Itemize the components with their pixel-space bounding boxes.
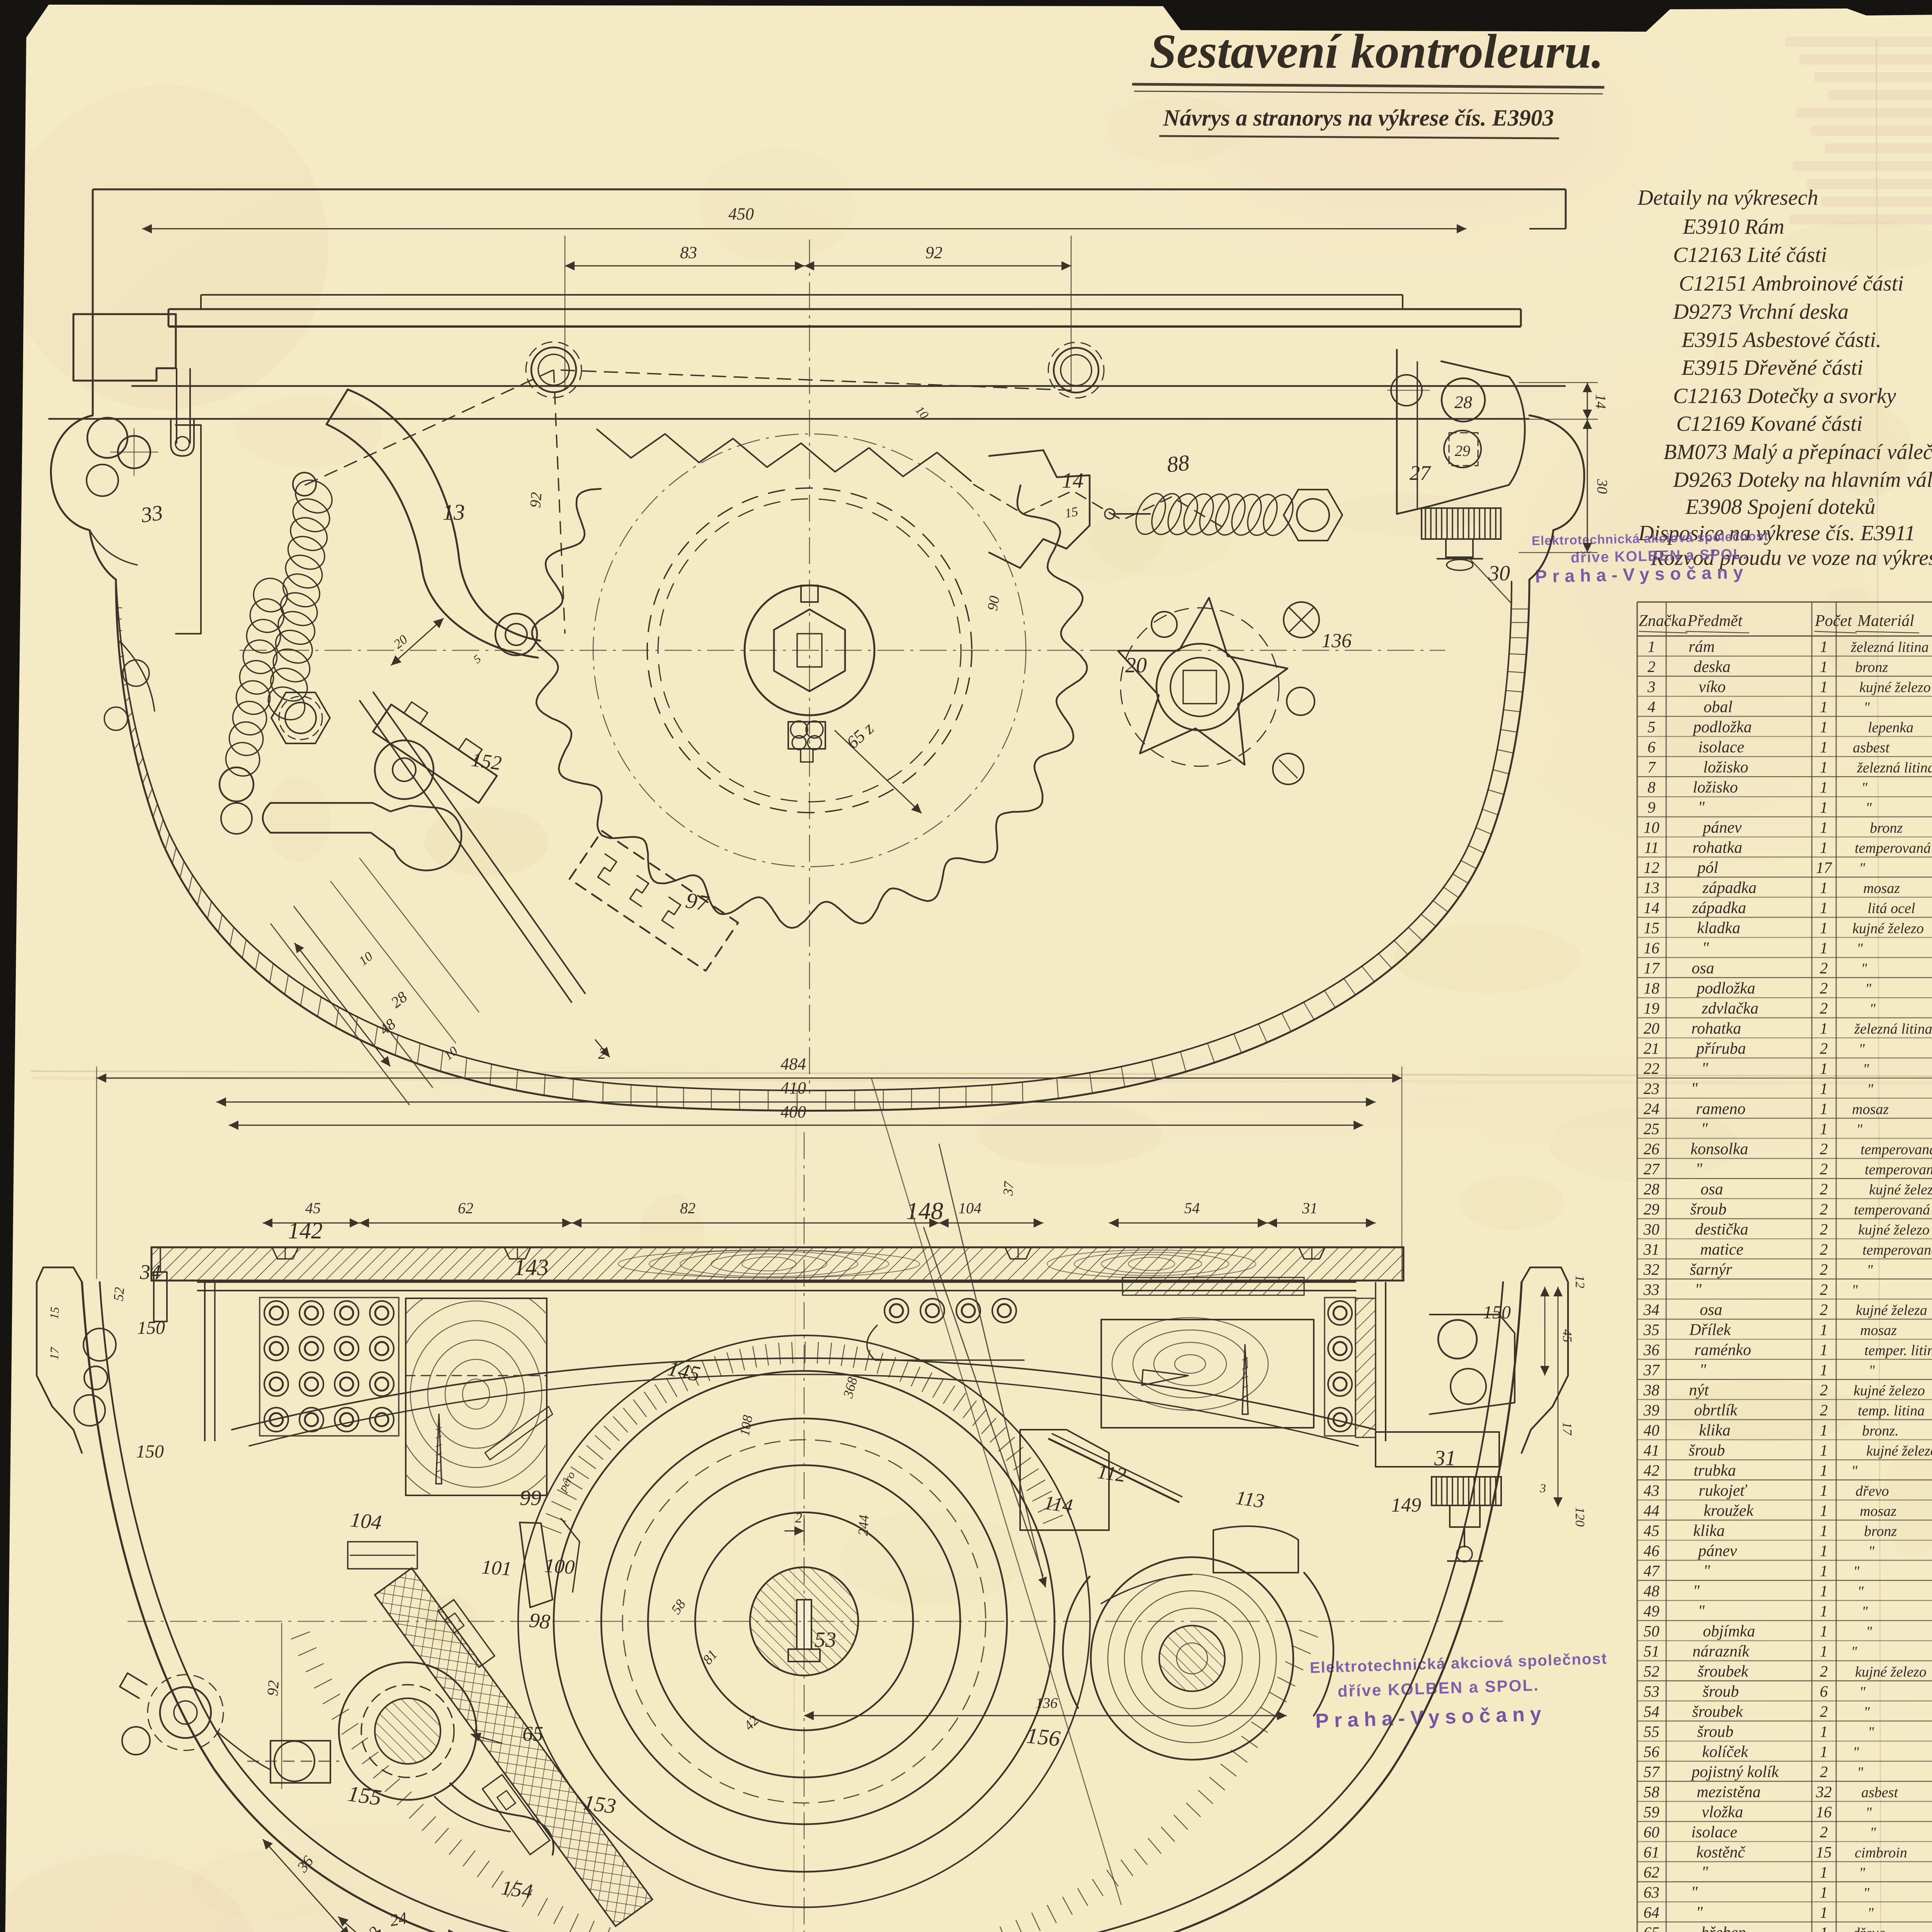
svg-text:1: 1 [1820,1622,1828,1640]
svg-text:29: 29 [1644,1200,1660,1218]
svg-text:1: 1 [1820,1522,1828,1539]
svg-text:19: 19 [1644,999,1660,1017]
svg-text:": " [1864,699,1870,716]
svg-text:1: 1 [1820,1863,1828,1881]
svg-text:2: 2 [1820,1763,1828,1781]
svg-text:1: 1 [1820,1542,1828,1560]
svg-text:západka: západka [1702,879,1757,897]
svg-text:šarnýr: šarnýr [1690,1261,1732,1279]
svg-text:ložisko: ložisko [1693,779,1738,796]
svg-text:pól: pól [1696,859,1718,877]
svg-text:": " [1857,1583,1864,1600]
svg-text:57: 57 [1644,1763,1660,1781]
svg-text:Předmět: Předmět [1687,612,1743,630]
svg-text:64: 64 [1644,1903,1660,1921]
svg-text:142: 142 [288,1218,323,1243]
svg-text:13: 13 [442,500,465,525]
svg-text:1: 1 [1820,1100,1828,1117]
svg-text:D9273 Vrchní deska: D9273 Vrchní deska [1673,300,1849,324]
svg-text:88: 88 [1166,450,1190,477]
svg-text:": " [1691,1080,1698,1098]
svg-text:": " [1867,1081,1874,1097]
svg-text:raménko: raménko [1694,1341,1751,1359]
svg-text:C12151 Ambroinové části: C12151 Ambroinové části [1679,272,1904,296]
svg-text:2: 2 [1820,1220,1828,1238]
svg-text:56: 56 [1644,1743,1660,1760]
svg-text:E3908 Spojení doteků: E3908 Spojení doteků [1685,495,1875,519]
svg-text:28: 28 [1644,1180,1660,1198]
svg-text:deska: deska [1694,658,1731,676]
svg-text:48: 48 [1644,1582,1660,1600]
svg-text:155: 155 [346,1781,383,1810]
svg-text:": " [1702,939,1709,957]
svg-text:30: 30 [1643,1220,1660,1238]
svg-text:82: 82 [680,1199,696,1217]
svg-text:34: 34 [1643,1301,1660,1318]
svg-text:2: 2 [1820,1702,1828,1720]
svg-text:31: 31 [1643,1240,1660,1258]
svg-text:mosaz: mosaz [1852,1101,1889,1117]
svg-text:": " [1859,1041,1865,1057]
svg-text:113: 113 [1234,1486,1265,1512]
svg-text:1: 1 [1820,1562,1828,1580]
svg-text:99: 99 [520,1486,541,1510]
svg-text:4: 4 [1648,698,1656,716]
svg-text:45: 45 [1644,1522,1660,1539]
svg-text:litá ocel: litá ocel [1867,900,1915,917]
svg-text:kolíček: kolíček [1702,1743,1748,1761]
svg-text:": " [1695,1281,1702,1299]
svg-text:2: 2 [1820,959,1828,977]
svg-text:13: 13 [1644,879,1660,896]
svg-text:": " [1853,1563,1860,1580]
svg-text:kujné železo: kujné železo [1859,679,1931,696]
svg-text:52: 52 [111,1286,127,1301]
svg-text:43: 43 [1644,1481,1660,1499]
svg-text:400: 400 [781,1102,806,1121]
svg-text:92: 92 [526,492,545,509]
svg-text:kujné železo: kujné železo [1852,920,1924,937]
svg-text:83: 83 [680,243,697,262]
svg-text:1: 1 [1820,1019,1828,1037]
svg-text:1: 1 [1820,1341,1828,1359]
svg-text:2: 2 [1820,1260,1828,1278]
svg-text:101: 101 [481,1556,512,1580]
svg-text:matice: matice [1700,1241,1743,1259]
svg-text:36: 36 [1643,1341,1660,1359]
svg-text:53: 53 [815,1628,836,1652]
svg-text:bronz: bronz [1864,1523,1897,1539]
svg-text:32: 32 [1816,1783,1832,1801]
svg-text:": " [1867,1262,1873,1278]
svg-text:": " [1853,1744,1859,1760]
svg-text:": " [1861,780,1868,796]
svg-text:pánev: pánev [1702,819,1742,837]
svg-text:C12163 Dotečky a svorky: C12163 Dotečky a svorky [1673,384,1896,408]
svg-text:Počet: Počet [1815,612,1852,630]
svg-text:temp. litina: temp. litina [1858,1403,1925,1419]
svg-text:136: 136 [1321,630,1352,652]
svg-text:3: 3 [1647,678,1656,696]
svg-text:": " [1867,1905,1874,1921]
svg-text:": " [1857,1764,1864,1781]
svg-text:kroužek: kroužek [1704,1502,1754,1520]
svg-text:": " [1698,799,1705,816]
svg-text:53: 53 [1644,1682,1660,1700]
svg-text:54: 54 [1184,1199,1200,1217]
svg-text:kujné železo: kujné železo [1866,1443,1932,1459]
svg-text:24: 24 [388,1908,408,1930]
svg-text:pojistný kolík: pojistný kolík [1690,1763,1779,1781]
svg-text:16: 16 [1816,1803,1832,1821]
svg-text:1: 1 [1820,1602,1828,1620]
svg-text:temper. litina: temper. litina [1864,1342,1932,1359]
svg-text:nárazník: nárazník [1692,1643,1750,1660]
svg-text:29: 29 [1455,442,1470,459]
svg-text:rameno: rameno [1696,1100,1745,1118]
svg-text:": " [1865,981,1872,997]
svg-text:2: 2 [1648,658,1656,675]
svg-text:E3915 Asbestové části.: E3915 Asbestové části. [1681,328,1881,352]
svg-text:15: 15 [1816,1843,1832,1861]
svg-text:temperovaná litina: temperovaná litina [1862,1242,1932,1258]
svg-text:": " [1696,1160,1702,1178]
svg-text:": " [1863,1061,1869,1077]
svg-text:kladka: kladka [1697,919,1740,937]
svg-text:31: 31 [1434,1446,1456,1470]
svg-text:46: 46 [1644,1542,1660,1560]
svg-text:33: 33 [139,501,164,527]
svg-text:6: 6 [1648,738,1656,756]
svg-text:3: 3 [1539,1481,1546,1495]
svg-text:cimbroin: cimbroin [1855,1845,1907,1861]
svg-text:44: 44 [1644,1502,1660,1519]
svg-text:54: 54 [1644,1702,1660,1720]
svg-text:24: 24 [1644,1100,1660,1117]
svg-text:21: 21 [1644,1039,1660,1057]
svg-text:": " [1870,1825,1876,1841]
svg-text:12: 12 [1573,1275,1587,1288]
svg-text:50: 50 [1644,1622,1660,1640]
svg-text:15: 15 [47,1306,62,1320]
svg-text:kujné železo: kujné železo [1858,1222,1930,1238]
svg-text:42: 42 [1644,1461,1660,1479]
svg-text:rám: rám [1689,638,1715,656]
svg-text:150: 150 [137,1318,165,1338]
svg-text:mosaz: mosaz [1860,1322,1897,1338]
svg-text:2: 2 [1820,1281,1828,1298]
svg-text:": " [1869,1362,1875,1379]
svg-text:65: 65 [522,1722,543,1745]
svg-text:C12163 Lité části: C12163 Lité části [1673,243,1827,267]
svg-text:15: 15 [1644,919,1660,937]
svg-text:14: 14 [1062,469,1083,493]
svg-text:136: 136 [1036,1695,1058,1711]
svg-text:104: 104 [349,1508,383,1534]
svg-text:C12169 Kované části: C12169 Kované části [1676,412,1862,436]
svg-text:2: 2 [1820,1823,1828,1841]
svg-text:E3915 Dřevěné části: E3915 Dřevěné části [1681,356,1863,380]
svg-text:120: 120 [1573,1507,1587,1527]
svg-text:58: 58 [1644,1783,1660,1801]
svg-text:podložka: podložka [1692,718,1752,736]
svg-text:1: 1 [1820,778,1828,796]
svg-text:1: 1 [1820,879,1828,896]
svg-text:objímka: objímka [1703,1622,1755,1640]
svg-text:23: 23 [1644,1080,1660,1097]
svg-text:18: 18 [1644,979,1660,997]
svg-text:112: 112 [1096,1461,1127,1486]
svg-text:30: 30 [1594,479,1610,494]
svg-text:37: 37 [1643,1361,1660,1379]
svg-text:6: 6 [1820,1682,1828,1700]
svg-text:": " [1857,940,1863,957]
svg-text:mosaz: mosaz [1860,1503,1896,1519]
svg-text:mezistěna: mezistěna [1697,1783,1761,1801]
svg-text:51: 51 [1644,1642,1660,1660]
svg-text:": " [1866,800,1872,816]
svg-text:17: 17 [1560,1422,1574,1436]
svg-text:63: 63 [1644,1883,1660,1901]
svg-text:2: 2 [598,1045,606,1062]
svg-text:": " [1868,1724,1874,1740]
svg-text:ložisko: ložisko [1703,759,1748,776]
svg-text:kujné železo: kujné železo [1855,1664,1927,1680]
svg-text:kostěnč: kostěnč [1696,1844,1746,1861]
svg-text:destička: destička [1695,1221,1748,1238]
svg-text:temperovaná litina: temperovaná litina [1865,1162,1932,1178]
svg-text:": " [1696,1904,1703,1922]
svg-text:1: 1 [1820,1743,1828,1760]
svg-text:114: 114 [1043,1492,1074,1517]
svg-text:34: 34 [139,1260,161,1284]
svg-text:šroub: šroub [1697,1723,1733,1741]
svg-text:": " [1701,1060,1708,1078]
svg-text:D9263 Doteky na hlavním vál: D9263 Doteky na hlavním válci [1673,468,1932,492]
svg-text:obal: obal [1704,698,1733,716]
svg-text:90: 90 [985,595,1003,612]
svg-text:16: 16 [1644,939,1660,957]
svg-text:isolace: isolace [1691,1823,1737,1841]
svg-text:47: 47 [1644,1562,1660,1580]
svg-text:osa: osa [1701,1180,1723,1198]
svg-text:bronz: bronz [1870,820,1903,836]
svg-text:Dřílek: Dřílek [1689,1321,1731,1339]
svg-text:14: 14 [1644,899,1660,917]
svg-text:šroub: šroub [1689,1442,1725,1459]
svg-text:": " [1703,1562,1710,1580]
svg-text:156: 156 [1026,1723,1061,1751]
svg-text:klika: klika [1693,1522,1725,1540]
svg-text:rohatka: rohatka [1692,839,1742,857]
svg-text:bronz.: bronz. [1862,1423,1899,1439]
svg-text:1: 1 [1820,1461,1828,1479]
svg-text:": " [1869,1001,1876,1017]
svg-text:dřevo: dřevo [1852,1925,1886,1932]
svg-text:": " [1699,1361,1706,1379]
svg-text:38: 38 [1643,1381,1660,1399]
svg-text:1: 1 [1820,1502,1828,1519]
svg-text:2: 2 [1820,1662,1828,1680]
svg-text:lepenka: lepenka [1868,719,1913,736]
svg-text:484: 484 [781,1054,806,1073]
svg-text:dřevo: dřevo [1855,1483,1889,1499]
svg-text:obrtlík: obrtlík [1694,1401,1738,1419]
svg-text:": " [1862,1604,1868,1620]
svg-text:1: 1 [1820,638,1828,655]
svg-text:65: 65 [1644,1923,1660,1932]
svg-text:25: 25 [1644,1120,1660,1138]
svg-text:1: 1 [1820,658,1828,675]
svg-text:šroub: šroub [1702,1683,1739,1701]
svg-text:1: 1 [1820,1883,1828,1901]
svg-text:temperovaná litina: temperovaná litina [1861,1141,1932,1158]
svg-text:E3910 Rám: E3910 Rám [1682,215,1784,239]
svg-text:nýt: nýt [1689,1381,1709,1399]
svg-text:1: 1 [1820,698,1828,716]
svg-text:2: 2 [1820,999,1828,1017]
svg-text:osa: osa [1700,1301,1722,1319]
svg-text:1: 1 [1820,718,1828,736]
svg-text:1: 1 [1820,758,1828,776]
svg-text:": " [1852,1282,1858,1298]
svg-text:49: 49 [1644,1602,1660,1620]
svg-text:20: 20 [1644,1019,1660,1037]
svg-text:2: 2 [1820,1401,1828,1419]
svg-text:klika: klika [1699,1422,1731,1439]
svg-text:podložka: podložka [1696,980,1755,997]
svg-text:17: 17 [47,1346,62,1361]
svg-text:mosaz: mosaz [1863,880,1900,896]
svg-text:": " [1861,961,1867,977]
svg-text:1: 1 [1820,1903,1828,1921]
svg-text:Sestavení kontroleuru.: Sestavení kontroleuru. [1150,25,1604,78]
svg-text:kujné železa: kujné železa [1856,1302,1927,1318]
svg-text:rukojeť: rukojeť [1699,1482,1747,1500]
svg-text:92: 92 [264,1680,282,1697]
svg-text:": " [1866,1624,1872,1640]
svg-text:1: 1 [1820,1441,1828,1459]
svg-text:26: 26 [1644,1140,1660,1158]
svg-text:2: 2 [1820,1160,1828,1178]
svg-text:104: 104 [958,1199,981,1217]
svg-text:2: 2 [1820,1180,1828,1198]
svg-text:1: 1 [1820,1923,1828,1932]
svg-text:2: 2 [1820,1200,1828,1218]
svg-text:1: 1 [1820,1060,1828,1077]
svg-text:pánev: pánev [1697,1542,1737,1560]
svg-text:temperovaná litina: temperovaná litina [1854,1202,1932,1218]
svg-text:2: 2 [1820,1240,1828,1258]
svg-text:1: 1 [1820,798,1828,816]
svg-text:150: 150 [136,1441,164,1462]
svg-text:2: 2 [1820,1381,1828,1399]
svg-text:41: 41 [1644,1441,1660,1459]
svg-text:": " [1859,1684,1866,1700]
svg-text:": " [1693,1582,1700,1600]
svg-text:153: 153 [582,1790,617,1818]
svg-text:60: 60 [1644,1823,1660,1841]
svg-text:trubka: trubka [1694,1462,1736,1480]
svg-text:37: 37 [1000,1180,1017,1196]
svg-text:Značka: Značka [1639,612,1687,630]
svg-text:1: 1 [1820,838,1828,856]
svg-text:": " [1859,860,1866,876]
svg-text:7: 7 [1648,758,1656,776]
svg-text:17: 17 [1644,959,1660,977]
svg-text:31: 31 [1302,1199,1318,1217]
svg-text:22: 22 [1644,1060,1660,1077]
svg-text:1: 1 [1820,1080,1828,1097]
svg-text:20: 20 [1125,653,1147,677]
svg-text:1: 1 [1820,818,1828,836]
svg-text:1: 1 [1820,1582,1828,1600]
svg-text:kujné železo: kujné železo [1854,1383,1925,1399]
svg-text:": " [1691,1884,1698,1901]
svg-text:": " [1859,1865,1866,1881]
svg-text:12: 12 [1644,859,1660,876]
svg-text:39: 39 [1643,1401,1660,1419]
svg-text:2: 2 [1820,1039,1828,1057]
svg-text:isolace: isolace [1698,738,1744,756]
svg-text:2: 2 [1820,979,1828,997]
svg-text:154: 154 [500,1876,534,1903]
svg-text:šroubek: šroubek [1692,1703,1743,1721]
svg-text:BM073 Malý a přepínací vál: BM073 Malý a přepínací váleček [1663,440,1932,464]
svg-text:": " [1851,1463,1858,1479]
svg-text:1: 1 [1648,638,1656,655]
svg-text:9: 9 [1648,798,1656,816]
svg-text:149: 149 [1391,1494,1421,1516]
svg-text:1: 1 [1820,1321,1828,1338]
svg-text:železná litina: železná litina [1857,760,1932,776]
svg-text:1: 1 [1820,678,1828,696]
svg-text:kujné železo: kujné železo [1869,1182,1932,1198]
svg-text:35: 35 [1643,1321,1660,1338]
svg-text:52: 52 [1644,1662,1660,1680]
svg-text:příruba: příruba [1695,1040,1746,1058]
svg-text:": " [1701,1120,1708,1138]
svg-text:30: 30 [1488,561,1510,585]
svg-text:víko: víko [1699,678,1726,696]
svg-text:hřeben: hřeben [1701,1924,1746,1932]
svg-text:šroubek: šroubek [1697,1663,1749,1680]
svg-text:2: 2 [1820,1301,1828,1318]
svg-text:17: 17 [1816,859,1833,876]
svg-text:244: 244 [855,1514,872,1536]
svg-text:11: 11 [1644,838,1659,856]
svg-text:1: 1 [1820,1421,1828,1439]
svg-text:železná litina: železná litina [1850,639,1929,655]
svg-text:62: 62 [458,1199,473,1217]
svg-text:410: 410 [781,1078,806,1097]
svg-text:západka: západka [1692,899,1746,917]
svg-text:59: 59 [1644,1803,1660,1821]
svg-text:92: 92 [925,243,942,262]
svg-text:27: 27 [1410,461,1431,485]
svg-text:Návrys a stranorys na výkrese: Návrys a stranorys na výkrese čís. E3903 [1163,105,1554,131]
svg-text:": " [1851,1644,1857,1660]
svg-text:1: 1 [1820,1723,1828,1740]
svg-text:61: 61 [1644,1843,1660,1861]
svg-text:5: 5 [1648,718,1656,736]
svg-text:40: 40 [1644,1421,1660,1439]
svg-text:1: 1 [1820,1361,1828,1379]
svg-text:45: 45 [305,1199,321,1217]
svg-text:": " [1863,1885,1870,1901]
svg-text:železná litina: železná litina [1854,1021,1932,1037]
svg-text:": " [1864,1704,1870,1720]
